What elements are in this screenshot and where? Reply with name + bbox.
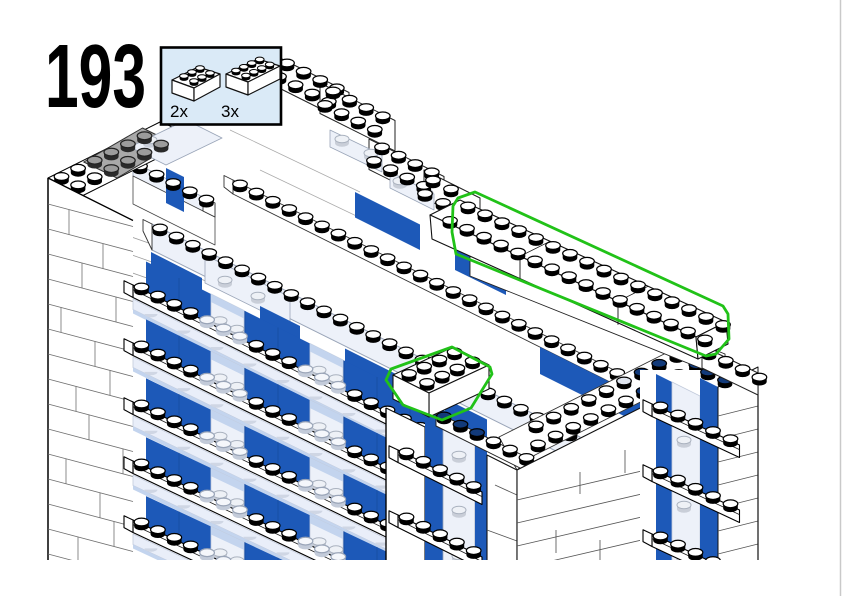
svg-text:193: 193 [45,27,146,127]
svg-text:3x: 3x [221,102,239,121]
svg-text:2x: 2x [170,102,188,121]
